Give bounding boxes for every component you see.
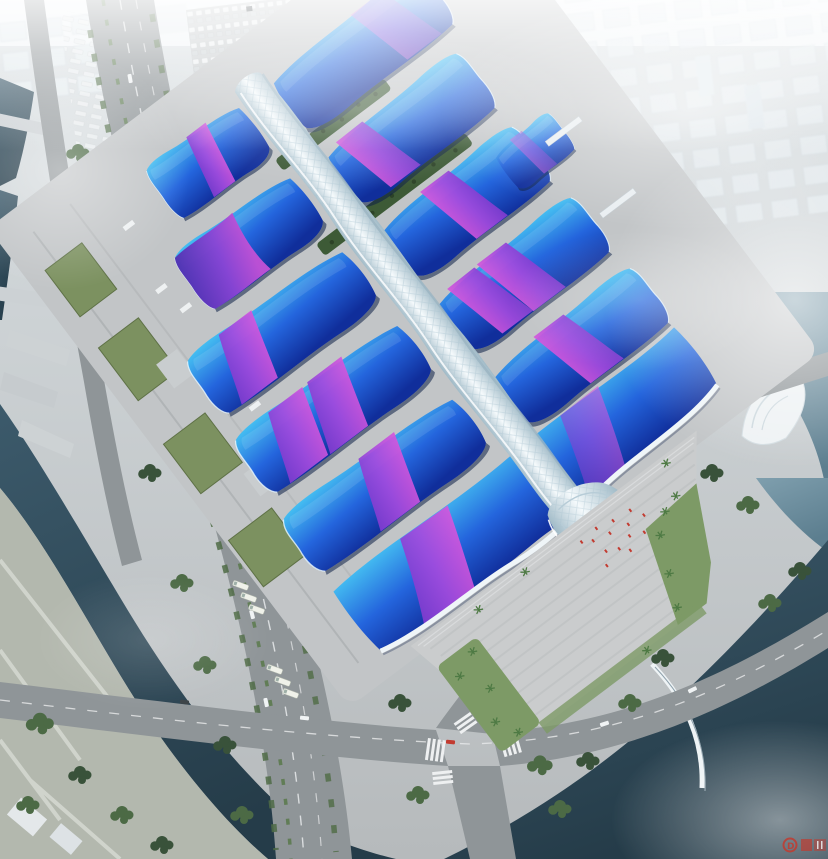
watermark-glyph: D	[787, 842, 794, 852]
aerial-rendering-stage: D	[0, 0, 828, 859]
watermark-block-2	[814, 839, 826, 851]
watermark-block-1	[801, 839, 812, 851]
scene-canvas: D	[0, 0, 828, 859]
